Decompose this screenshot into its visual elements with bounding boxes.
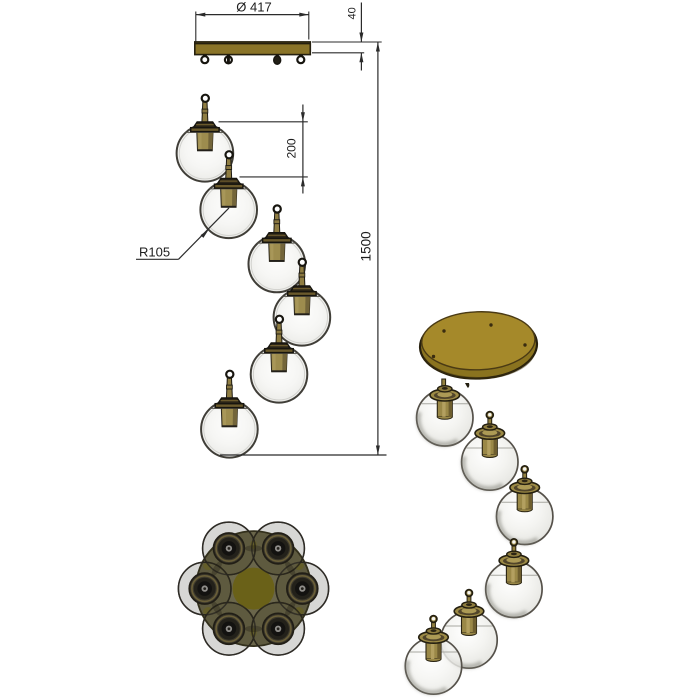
svg-text:200: 200 bbox=[284, 138, 298, 158]
svg-text:Ø 417: Ø 417 bbox=[236, 0, 271, 15]
svg-text:40: 40 bbox=[347, 7, 359, 19]
svg-text:R105: R105 bbox=[139, 244, 170, 259]
svg-text:1500: 1500 bbox=[359, 231, 374, 261]
